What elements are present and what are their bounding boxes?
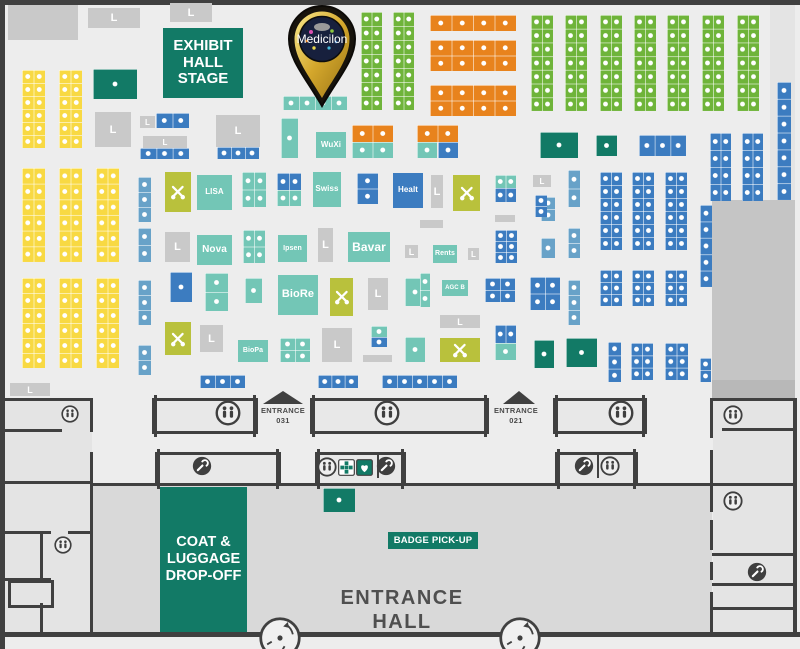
- booth[interactable]: [596, 135, 617, 156]
- booth[interactable]: [8, 5, 78, 40]
- floor-area: [712, 380, 795, 398]
- restroom-icon: [723, 405, 743, 425]
- booth[interactable]: [59, 168, 82, 262]
- booth[interactable]: L: [10, 383, 50, 396]
- booth[interactable]: [138, 280, 151, 325]
- booth[interactable]: [430, 85, 516, 116]
- wall: [90, 398, 93, 432]
- info-counter: [152, 398, 258, 434]
- booth[interactable]: [138, 228, 151, 262]
- booth[interactable]: [639, 135, 686, 156]
- booth[interactable]: [495, 188, 516, 202]
- booth[interactable]: L: [95, 112, 131, 147]
- booth[interactable]: L: [468, 248, 479, 260]
- service-icon: [574, 456, 594, 476]
- booth-biore[interactable]: BioRe: [278, 275, 318, 315]
- booth[interactable]: [371, 337, 387, 347]
- booth[interactable]: [541, 238, 555, 258]
- booth-rents[interactable]: Rents: [433, 245, 457, 263]
- wall: [90, 452, 93, 632]
- booth[interactable]: [530, 277, 560, 310]
- booth[interactable]: [430, 15, 516, 31]
- wall: [68, 531, 93, 534]
- booth[interactable]: [566, 338, 597, 367]
- booth[interactable]: [495, 215, 515, 222]
- booth[interactable]: L: [440, 315, 480, 328]
- booth[interactable]: [420, 273, 430, 307]
- restroom-icon: [600, 456, 620, 476]
- entrance-021-label: ENTRANCE 021: [493, 406, 539, 426]
- floor-area: [713, 398, 793, 632]
- coat-label-line: COAT &: [176, 534, 231, 551]
- booth[interactable]: [495, 325, 516, 343]
- booth-lisa[interactable]: LISA: [197, 175, 232, 210]
- booth[interactable]: [600, 172, 622, 250]
- restroom-icon: [54, 536, 72, 554]
- restroom-icon: [608, 400, 634, 426]
- booth[interactable]: [22, 70, 45, 148]
- wall: [0, 0, 5, 649]
- booth[interactable]: [318, 375, 358, 388]
- booth[interactable]: [200, 375, 245, 388]
- scissors-icon: [331, 286, 353, 308]
- restroom-icon: [723, 491, 743, 511]
- booth[interactable]: L: [143, 136, 187, 148]
- wall: [710, 398, 713, 438]
- booth[interactable]: [138, 345, 151, 375]
- booth-ipsen[interactable]: Ipsen: [278, 235, 307, 262]
- wall: [712, 583, 795, 586]
- booth[interactable]: [600, 270, 622, 306]
- booth[interactable]: [361, 12, 382, 110]
- booth[interactable]: [280, 338, 310, 362]
- booth[interactable]: [277, 173, 301, 190]
- wall: [0, 0, 800, 5]
- service-icon: [192, 456, 212, 476]
- booth[interactable]: [242, 172, 266, 207]
- logo-text: Medicilon: [297, 32, 348, 46]
- wall: [710, 398, 795, 401]
- booth[interactable]: [737, 15, 759, 111]
- revolving-door-icon: [258, 616, 302, 649]
- entrance-label-line: ENTRANCE: [260, 406, 306, 416]
- booth[interactable]: [534, 340, 554, 368]
- booth[interactable]: [363, 355, 392, 362]
- booth-healt[interactable]: Healt: [393, 173, 423, 208]
- booth[interactable]: [495, 230, 517, 263]
- booth[interactable]: [22, 278, 45, 368]
- booth[interactable]: [665, 172, 687, 250]
- booth[interactable]: [352, 142, 393, 158]
- booth[interactable]: [22, 168, 45, 262]
- service-icon: [376, 456, 396, 476]
- booth[interactable]: [608, 342, 621, 382]
- booth[interactable]: [140, 148, 189, 159]
- booth-agc-b[interactable]: AGC B: [442, 280, 468, 296]
- restroom-icon: [61, 405, 79, 423]
- booth[interactable]: [417, 142, 437, 158]
- wall: [722, 428, 795, 431]
- firstaid-icon: [338, 459, 355, 476]
- booth-wuxi[interactable]: WuXi: [316, 132, 346, 158]
- wall: [5, 429, 62, 432]
- floor-area: [712, 200, 795, 380]
- booth[interactable]: [205, 273, 228, 311]
- entrance-arrow: [263, 391, 303, 404]
- booth[interactable]: [568, 170, 580, 207]
- wall: [710, 562, 713, 580]
- coat-label-line: DROP-OFF: [166, 568, 242, 585]
- booth[interactable]: [93, 69, 137, 99]
- booth[interactable]: [540, 132, 578, 158]
- booth[interactable]: [165, 172, 191, 212]
- booth[interactable]: [430, 40, 516, 71]
- booth[interactable]: [568, 280, 580, 325]
- booth[interactable]: [632, 270, 654, 306]
- wall: [92, 483, 712, 486]
- booth[interactable]: [495, 343, 516, 360]
- booth[interactable]: [600, 15, 622, 111]
- booth[interactable]: L: [431, 175, 443, 208]
- aed-icon: [356, 459, 373, 476]
- booth[interactable]: L: [322, 328, 352, 362]
- scissors-icon: [167, 328, 189, 350]
- entrance-label-line: 021: [493, 416, 539, 426]
- stage-label-line: STAGE: [178, 71, 229, 88]
- booth[interactable]: [96, 278, 119, 368]
- booth[interactable]: [440, 338, 480, 362]
- booth[interactable]: [393, 12, 414, 110]
- booth[interactable]: [700, 205, 712, 287]
- booth[interactable]: [243, 230, 265, 263]
- booth[interactable]: [495, 175, 516, 188]
- booth[interactable]: L: [200, 325, 223, 352]
- booth[interactable]: L: [216, 115, 260, 147]
- booth-bavar[interactable]: Bavar: [348, 232, 390, 262]
- booth[interactable]: [417, 125, 458, 142]
- booth[interactable]: [667, 15, 689, 111]
- hall-label-line: HALL: [337, 610, 467, 634]
- wall: [5, 531, 51, 534]
- room-outline: [8, 580, 54, 608]
- wall: [5, 481, 92, 484]
- wall: [597, 454, 599, 478]
- booth[interactable]: L: [140, 116, 155, 128]
- booth-swiss[interactable]: Swiss: [313, 172, 341, 207]
- restroom-icon: [374, 400, 400, 426]
- booth[interactable]: [453, 175, 480, 211]
- booth[interactable]: [535, 195, 547, 217]
- restroom-icon: [215, 400, 241, 426]
- booth[interactable]: [665, 270, 687, 306]
- booth[interactable]: [245, 278, 262, 303]
- booth[interactable]: [632, 172, 654, 250]
- booth[interactable]: [138, 177, 151, 222]
- wall: [40, 531, 43, 581]
- hall-label-line: ENTRANCE: [337, 586, 467, 610]
- wall: [793, 398, 797, 632]
- entrance-arrow: [503, 391, 535, 404]
- booth[interactable]: [405, 337, 425, 362]
- booth[interactable]: [170, 272, 192, 302]
- booth[interactable]: [352, 125, 393, 142]
- scissors-icon: [167, 181, 189, 203]
- booth[interactable]: [323, 488, 355, 512]
- booth[interactable]: [665, 343, 688, 380]
- wall: [710, 592, 713, 632]
- info-counter: [155, 452, 281, 486]
- booth[interactable]: [485, 278, 515, 302]
- booth[interactable]: [777, 82, 791, 200]
- booth-nova[interactable]: Nova: [197, 235, 232, 265]
- exhibit-hall-stage-booth[interactable]: EXHIBIT HALL STAGE: [163, 28, 243, 98]
- booth[interactable]: [165, 322, 191, 355]
- booth[interactable]: L: [165, 232, 190, 262]
- booth[interactable]: L: [170, 3, 212, 22]
- booth[interactable]: [568, 228, 580, 258]
- booth[interactable]: [59, 278, 82, 368]
- booth[interactable]: L: [533, 175, 551, 187]
- wall: [712, 607, 795, 610]
- booth[interactable]: [565, 15, 587, 111]
- booth[interactable]: [281, 118, 298, 158]
- scissors-icon: [456, 182, 478, 204]
- map-pin-icon: Medicilon: [284, 2, 360, 108]
- entrance-label-line: 031: [260, 416, 306, 426]
- booth[interactable]: [156, 113, 189, 128]
- badge-label: BADGE PICK-UP: [394, 535, 473, 546]
- booth[interactable]: [710, 133, 731, 201]
- booth[interactable]: [742, 133, 763, 201]
- booth-biopa[interactable]: BioPa: [238, 340, 268, 362]
- scissors-icon: [449, 339, 471, 361]
- booth[interactable]: [631, 343, 653, 380]
- booth[interactable]: [59, 70, 82, 148]
- coat-label-line: LUGGAGE: [167, 551, 240, 568]
- booth[interactable]: [371, 326, 387, 337]
- wall: [712, 553, 795, 556]
- booth[interactable]: [382, 375, 457, 388]
- entrance-031-label: ENTRANCE 031: [260, 406, 306, 426]
- revolving-door-icon: [498, 616, 542, 649]
- booth[interactable]: [96, 168, 119, 262]
- booth[interactable]: L: [88, 8, 140, 28]
- booth[interactable]: [438, 142, 458, 158]
- booth[interactable]: [217, 147, 259, 159]
- wall: [5, 398, 93, 401]
- booth[interactable]: [531, 15, 553, 111]
- booth[interactable]: [700, 358, 711, 382]
- booth[interactable]: [702, 15, 724, 111]
- restroom-icon: [317, 457, 337, 477]
- booth[interactable]: L: [318, 228, 333, 262]
- booth[interactable]: [357, 173, 378, 204]
- entrance-hall-label: ENTRANCE HALL: [337, 586, 467, 634]
- entrance-label-line: ENTRANCE: [493, 406, 539, 416]
- booth[interactable]: L: [405, 245, 418, 258]
- stage-label-line: HALL: [183, 55, 223, 72]
- coat-luggage-dropoff[interactable]: COAT & LUGGAGE DROP-OFF: [160, 487, 247, 632]
- booth[interactable]: [634, 15, 656, 111]
- wall: [710, 520, 713, 550]
- medicilon-logo-pin[interactable]: Medicilon: [284, 2, 360, 108]
- wall: [710, 450, 713, 512]
- wall: [712, 483, 795, 486]
- booth[interactable]: [420, 220, 443, 228]
- exhibit-hall-floor-map: EXHIBIT HALL STAGE COAT & LUGGAGE DROP-O…: [0, 0, 800, 649]
- booth[interactable]: [330, 278, 353, 316]
- booth[interactable]: L: [368, 278, 388, 310]
- badge-pickup[interactable]: BADGE PICK-UP: [388, 532, 478, 549]
- booth[interactable]: [277, 190, 301, 206]
- service-icon: [747, 562, 767, 582]
- stage-label-line: EXHIBIT: [173, 38, 232, 55]
